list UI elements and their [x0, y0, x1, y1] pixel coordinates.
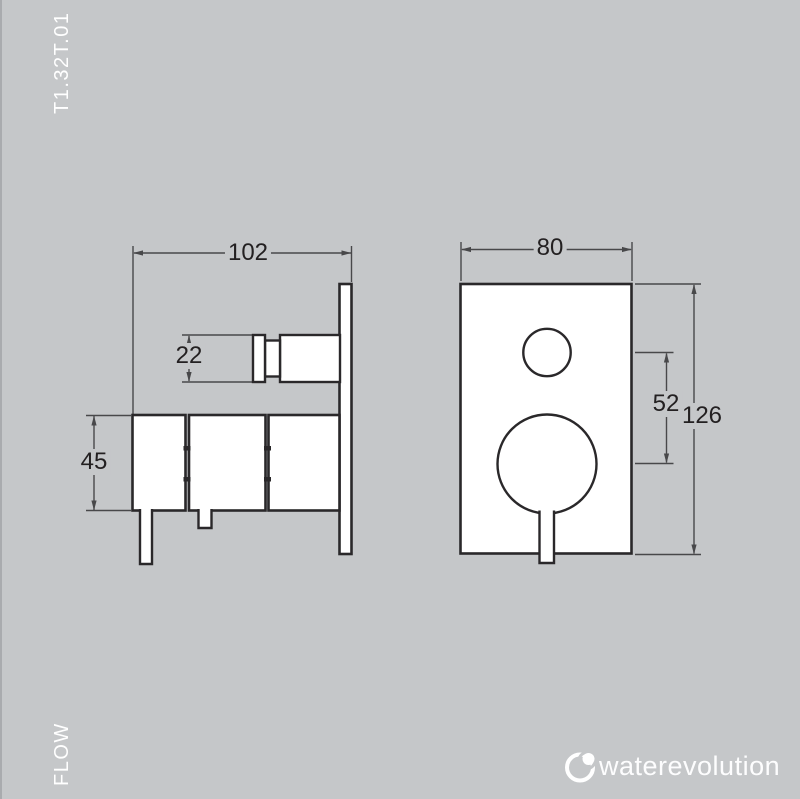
dim-label-80: 80	[534, 235, 567, 261]
side-bottom-tab	[199, 509, 212, 528]
side-lever-handle	[140, 509, 152, 564]
spec-sheet-page: 102 22 45 80 52 126 T1.32T.01 FLOW water…	[0, 0, 800, 799]
dim-label-126: 126	[679, 403, 725, 429]
side-body-section-3	[269, 415, 340, 511]
side-knob-cap	[253, 335, 265, 382]
dim-label-22: 22	[173, 343, 206, 369]
front-diverter-knob	[523, 329, 570, 376]
dim-label-45: 45	[78, 449, 111, 475]
side-knob-neck	[265, 341, 280, 377]
water-drop-circle-icon	[563, 750, 598, 785]
product-code-label: T1.32T.01	[52, 14, 72, 114]
side-knob-body	[280, 335, 340, 382]
dim-label-102: 102	[225, 240, 271, 266]
side-body-section-1	[133, 415, 186, 511]
side-body-section-2	[189, 415, 266, 511]
dim-label-52: 52	[650, 391, 683, 417]
flow-label: FLOW	[52, 720, 72, 786]
front-handle-rosette	[498, 415, 597, 514]
front-lever-handle	[540, 511, 555, 564]
side-wall-plate	[340, 284, 352, 554]
brand-wordmark: waterevolution	[599, 752, 780, 782]
side-view-drawing	[86, 246, 352, 564]
